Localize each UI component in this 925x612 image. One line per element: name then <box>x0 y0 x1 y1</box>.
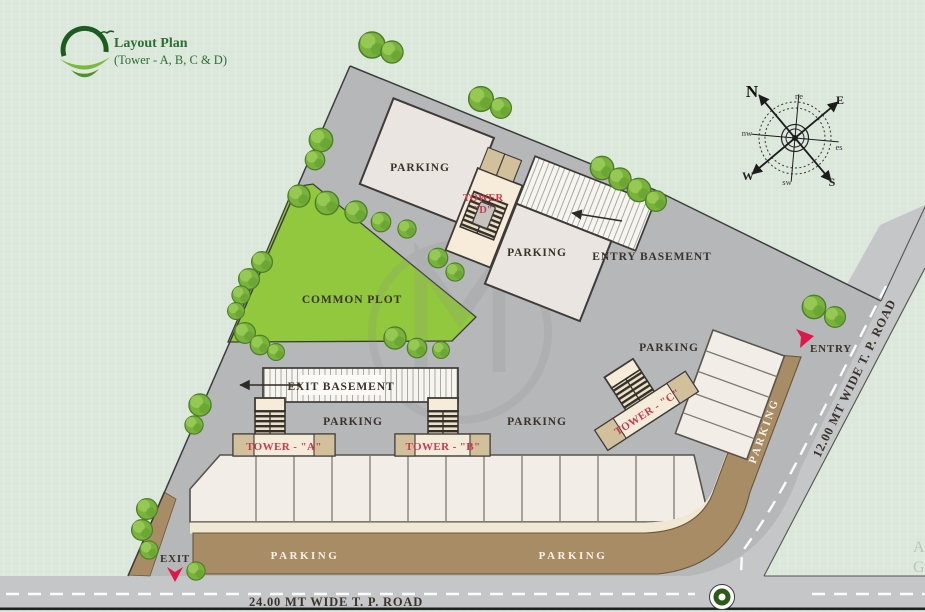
tree-icon <box>140 541 158 559</box>
tower-d-label-line1: TOWER <box>463 193 503 204</box>
tree-icon <box>446 263 464 281</box>
tree-icon <box>469 87 494 112</box>
tree-icon <box>315 191 338 214</box>
entry-label: ENTRY <box>810 343 852 355</box>
tree-icon <box>137 499 158 520</box>
parking-stall-row <box>190 455 710 522</box>
parking-label-brown: PARKING <box>271 550 340 562</box>
tower-d-label-line2: "D" <box>473 205 492 216</box>
entry-basement-label: ENTRY BASEMENT <box>592 251 711 263</box>
page-subtitle: (Tower - A, B, C & D) <box>114 53 227 67</box>
edge-letter-a: A <box>913 539 925 556</box>
compass-sw: sw <box>782 177 792 187</box>
tree-icon <box>381 41 403 63</box>
tree-icon <box>398 220 416 238</box>
bottom-road-label: 24.00 MT WIDE T. P. ROAD <box>249 595 423 609</box>
tower-a-label: TOWER - "A" <box>246 441 322 453</box>
exit-basement-label: EXIT BASEMENT <box>287 381 394 393</box>
parking-label: PARKING <box>507 247 567 259</box>
tree-icon <box>132 520 153 541</box>
tree-icon <box>428 248 448 268</box>
tower-b-label: TOWER - "B" <box>405 441 480 453</box>
tree-icon <box>384 327 406 349</box>
compass-e: E <box>836 93 844 107</box>
parking-label: PARKING <box>323 416 383 428</box>
tree-icon <box>345 201 367 223</box>
tree-icon <box>371 212 391 232</box>
tree-icon <box>305 150 325 170</box>
exit-label: EXIT <box>160 553 190 565</box>
parking-label: PARKING <box>639 342 699 354</box>
tree-icon <box>288 185 310 207</box>
parking-label-brown: PARKING <box>539 550 608 562</box>
tree-icon <box>407 338 427 358</box>
page-title: Layout Plan <box>114 36 188 51</box>
tree-icon <box>250 335 270 355</box>
compass-ne: ne <box>795 91 803 101</box>
tree-icon <box>228 303 245 320</box>
tree-icon <box>189 394 211 416</box>
compass-n: N <box>746 82 759 101</box>
site-plan: TOWER - "A" TOWER - "B" TOWER - "C" <box>0 0 925 612</box>
tree-icon <box>802 295 825 318</box>
tree-icon <box>825 307 846 328</box>
compass-s: S <box>829 175 836 189</box>
tree-icon <box>646 191 667 212</box>
common-plot-label: COMMON PLOT <box>302 294 402 306</box>
compass-se: es <box>835 142 842 152</box>
tree-icon <box>491 98 512 119</box>
tree-icon <box>309 128 332 151</box>
tree-icon <box>185 416 203 434</box>
road-bottom-line <box>0 608 925 611</box>
road-junction-marker <box>710 585 735 610</box>
parking-label: PARKING <box>507 416 567 428</box>
parking-label: PARKING <box>390 162 450 174</box>
layout-plan-canvas: TOWER - "A" TOWER - "B" TOWER - "C" <box>0 0 925 612</box>
edge-letter-g: G <box>913 559 925 576</box>
compass-nw: nw <box>742 128 753 138</box>
tree-icon <box>433 342 450 359</box>
compass-w: W <box>742 169 754 183</box>
tree-icon <box>232 286 250 304</box>
bottom-road <box>0 576 925 609</box>
tree-icon <box>268 344 285 361</box>
tree-icon <box>252 252 273 273</box>
